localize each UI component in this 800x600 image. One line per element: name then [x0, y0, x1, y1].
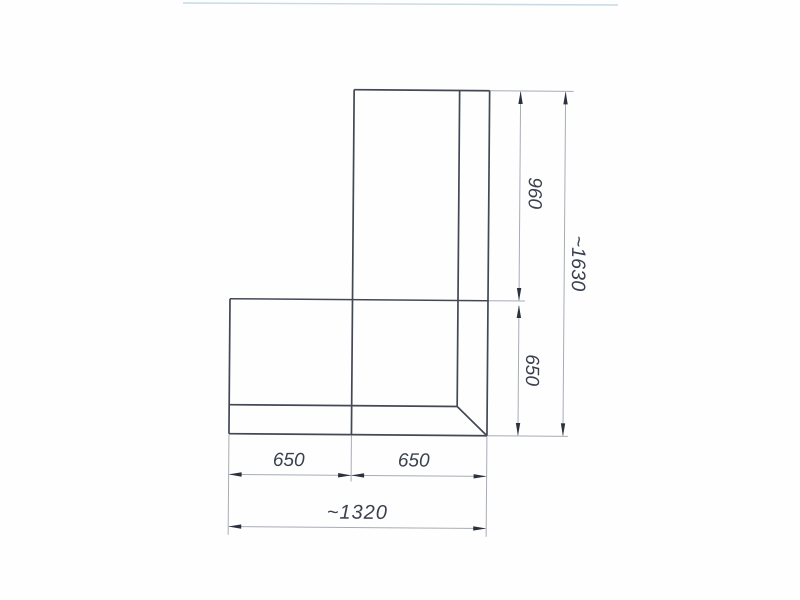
svg-text:650: 650 — [398, 450, 430, 471]
svg-text:650: 650 — [521, 354, 542, 386]
svg-text:960: 960 — [524, 177, 545, 209]
svg-text:~1630: ~1630 — [567, 235, 589, 291]
svg-text:650: 650 — [273, 450, 305, 471]
svg-text:~1320: ~1320 — [327, 501, 388, 523]
